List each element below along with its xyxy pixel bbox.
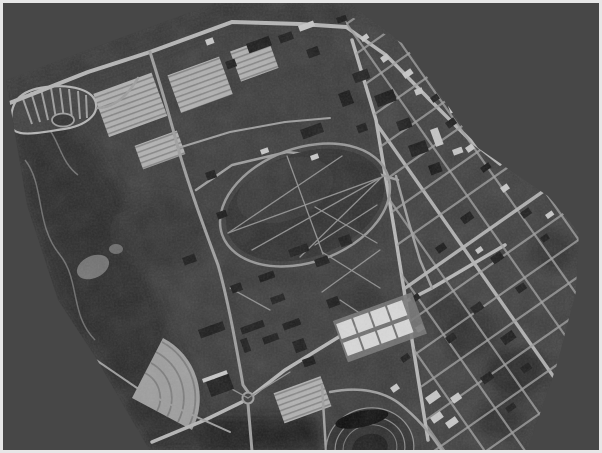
framed-aerial-image <box>0 0 602 453</box>
aerial-photo <box>0 0 602 453</box>
